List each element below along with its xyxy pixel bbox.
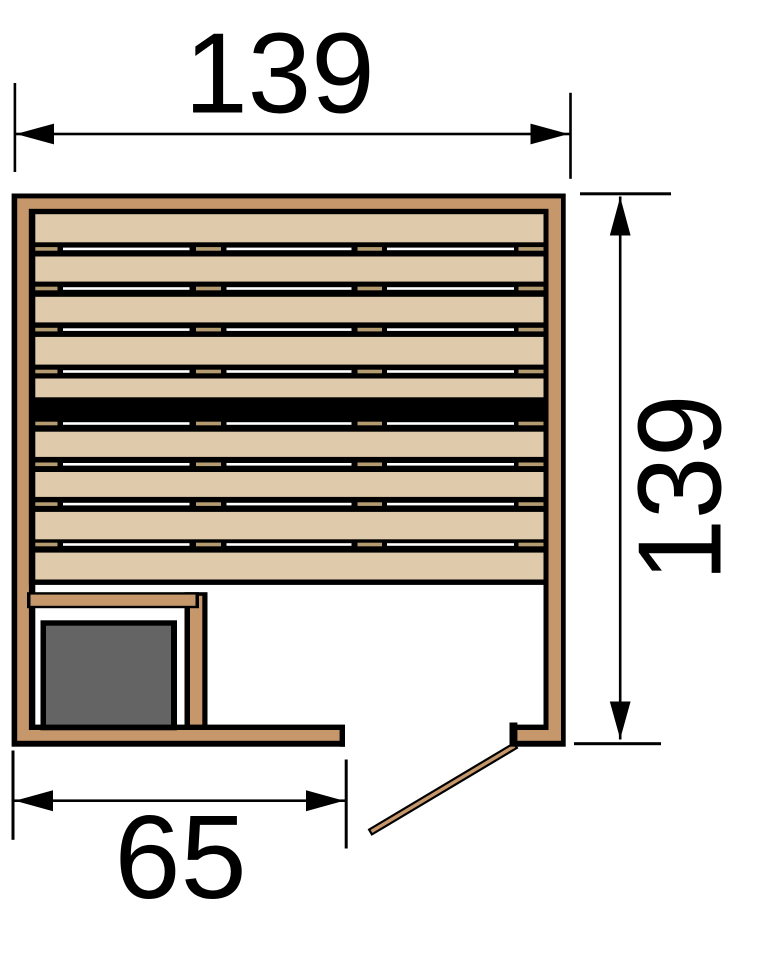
svg-text:139: 139 bbox=[614, 395, 746, 582]
svg-text:65: 65 bbox=[114, 791, 246, 924]
svg-text:139: 139 bbox=[184, 11, 374, 138]
